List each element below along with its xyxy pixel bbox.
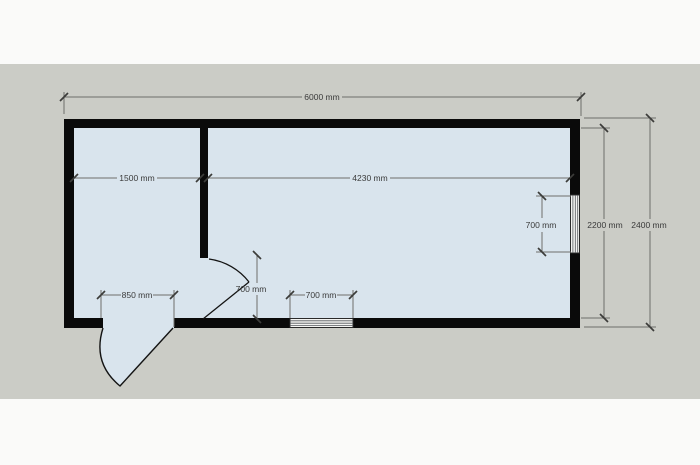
bottom-window: [290, 319, 353, 328]
top-white-band: [0, 0, 700, 64]
floor-plan-page: 6000 mm 1500 mm 4230 mm 850 mm: [0, 0, 700, 465]
dim-label-interior-door-width: 700 mm: [236, 284, 267, 294]
partition-wall: [200, 128, 208, 258]
dim-label-right-room-width: 4230 mm: [352, 173, 387, 183]
dim-label-entry-door-width: 850 mm: [122, 290, 153, 300]
side-window: [571, 195, 580, 253]
bottom-white-band: [0, 399, 700, 465]
floor-plan-drawing: 6000 mm 1500 mm 4230 mm 850 mm: [0, 0, 700, 465]
dim-label-side-window-height: 700 mm: [526, 220, 557, 230]
dim-label-bottom-window-width: 700 mm: [306, 290, 337, 300]
dim-label-overall-width: 6000 mm: [304, 92, 339, 102]
dim-label-interior-height: 2200 mm: [587, 220, 622, 230]
dim-label-left-room-width: 1500 mm: [119, 173, 154, 183]
dim-label-exterior-height: 2400 mm: [631, 220, 666, 230]
entry-door-opening: [103, 318, 174, 329]
